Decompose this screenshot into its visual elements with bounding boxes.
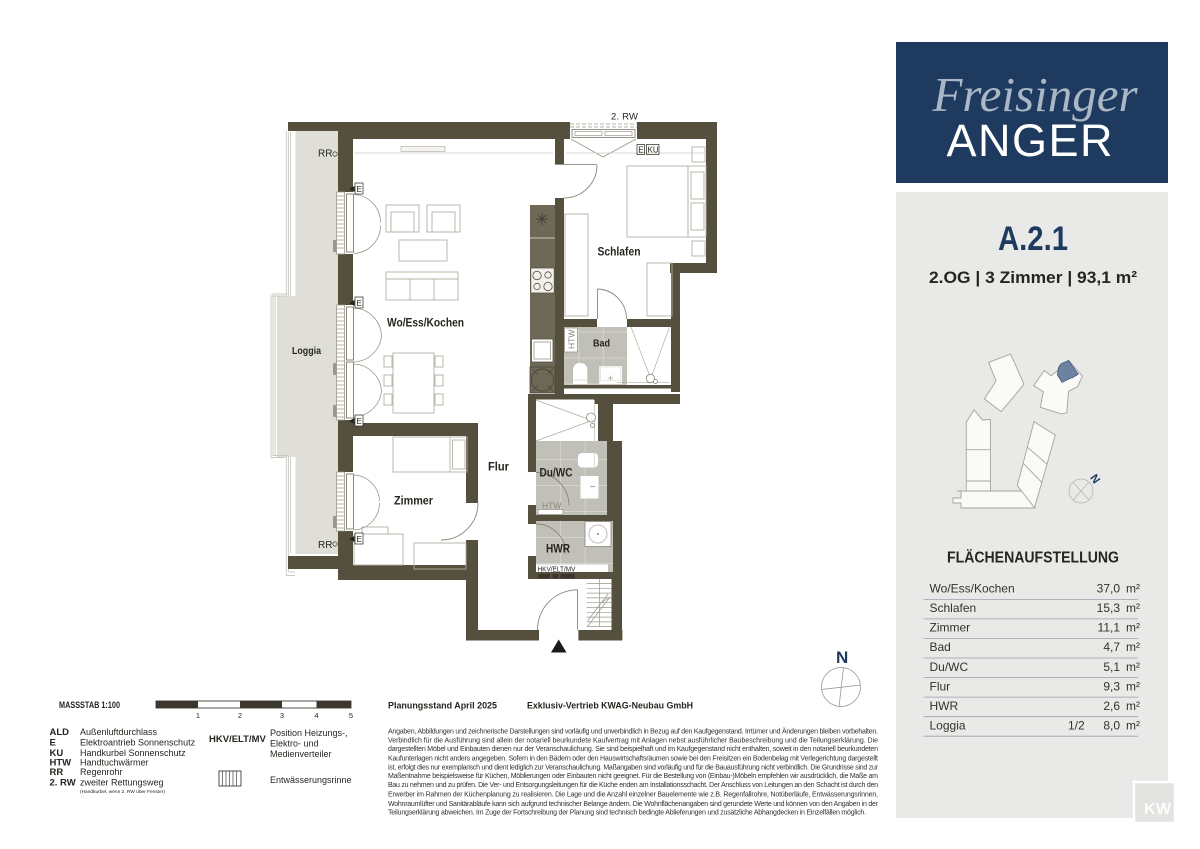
svg-text:E: E xyxy=(357,417,362,426)
svg-text:Regenrohr: Regenrohr xyxy=(80,767,123,777)
svg-text:Loggia: Loggia xyxy=(292,345,321,357)
svg-text:KW: KW xyxy=(1144,801,1172,818)
svg-text:Teilungserklärung abweichen. I: Teilungserklärung abweichen. Im Zuge der… xyxy=(388,810,866,817)
svg-text:2. RW: 2. RW xyxy=(50,777,76,788)
svg-text:Loggia: Loggia xyxy=(930,718,966,732)
svg-text:Zimmer: Zimmer xyxy=(930,621,971,635)
svg-text:4: 4 xyxy=(314,711,318,720)
svg-text:Bad: Bad xyxy=(930,640,951,654)
svg-text:m²: m² xyxy=(1126,679,1140,693)
svg-text:E: E xyxy=(357,185,362,194)
svg-text:Elektroantrieb Sonnenschutz: Elektroantrieb Sonnenschutz xyxy=(80,737,196,747)
svg-text:5: 5 xyxy=(349,711,353,720)
svg-text:Du/WC: Du/WC xyxy=(930,660,969,674)
svg-text:8,0: 8,0 xyxy=(1103,718,1120,732)
svg-text:RR: RR xyxy=(318,540,332,551)
svg-text:dargestellten Möbel und Einbau: dargestellten Möbel und Einbauten dienen… xyxy=(388,746,878,753)
svg-text:9,3: 9,3 xyxy=(1103,679,1120,693)
svg-text:KU: KU xyxy=(648,146,659,155)
svg-text:Flur: Flur xyxy=(930,679,951,693)
svg-text:MASSSTAB 1:100: MASSSTAB 1:100 xyxy=(59,700,120,711)
svg-text:Wo/Ess/Kochen: Wo/Ess/Kochen xyxy=(387,318,464,330)
svg-text:m²: m² xyxy=(1126,699,1140,713)
svg-text:E: E xyxy=(50,737,56,748)
svg-text:FLÄCHENAUFSTELLUNG: FLÄCHENAUFSTELLUNG xyxy=(947,550,1119,567)
svg-text:2,6: 2,6 xyxy=(1103,699,1120,713)
svg-text:4,7: 4,7 xyxy=(1103,640,1120,654)
svg-text:m²: m² xyxy=(1126,601,1140,615)
svg-text:Planungsstand April 2025: Planungsstand April 2025 xyxy=(388,701,498,712)
svg-text:2.OG | 3 Zimmer | 93,1 m²: 2.OG | 3 Zimmer | 93,1 m² xyxy=(929,269,1138,287)
svg-text:Maßentnahme beispielsweise für: Maßentnahme beispielsweise für Küchen, M… xyxy=(388,773,878,780)
svg-text:E: E xyxy=(357,535,362,544)
svg-text:15,3: 15,3 xyxy=(1097,601,1121,615)
svg-text:Verbindlich für die Ausführung: Verbindlich für die Ausführung sind alle… xyxy=(388,738,878,745)
svg-text:Medienverteiler: Medienverteiler xyxy=(270,749,332,759)
svg-text:Wo/Ess/Kochen: Wo/Ess/Kochen xyxy=(930,582,1015,596)
svg-text:1/2: 1/2 xyxy=(1068,718,1085,732)
svg-text:Handkurbel Sonnenschutz: Handkurbel Sonnenschutz xyxy=(80,748,186,758)
svg-text:Erwerber im Rahmen der Küchenp: Erwerber im Rahmen der Küchenplanung zu … xyxy=(388,791,878,798)
svg-text:1: 1 xyxy=(196,711,200,720)
svg-text:Elektro- und: Elektro- und xyxy=(270,739,319,749)
svg-text:Flur: Flur xyxy=(488,462,509,474)
svg-text:m²: m² xyxy=(1126,621,1140,635)
svg-text:Bau zu nehmen und zu prüfen. D: Bau zu nehmen und zu prüfen. Die Ver- un… xyxy=(388,782,878,789)
svg-text:2. RW: 2. RW xyxy=(611,112,638,123)
svg-text:Kaufunterlagen nicht anders an: Kaufunterlagen nicht anders angegeben. S… xyxy=(388,755,878,762)
svg-text:Bad: Bad xyxy=(593,338,610,350)
svg-text:37,0: 37,0 xyxy=(1097,582,1121,596)
svg-text:Position Heizungs-,: Position Heizungs-, xyxy=(270,728,348,738)
svg-text:2: 2 xyxy=(238,711,242,720)
svg-text:HKV/ELT/MV: HKV/ELT/MV xyxy=(538,567,576,574)
svg-text:(Handkurbel, wenn 2. RW über F: (Handkurbel, wenn 2. RW über Fenster) xyxy=(80,789,165,795)
svg-text:HWR: HWR xyxy=(930,699,959,713)
svg-text:ist, erfolgt dies nur exemplar: ist, erfolgt dies nur exemplarisch und d… xyxy=(388,764,879,771)
svg-text:m²: m² xyxy=(1126,718,1140,732)
svg-text:Zimmer: Zimmer xyxy=(394,496,433,508)
svg-text:m²: m² xyxy=(1126,660,1140,674)
svg-text:RR: RR xyxy=(50,767,64,778)
svg-text:E: E xyxy=(638,146,643,155)
svg-text:Exklusiv-Vertrieb KWAG-Neubau: Exklusiv-Vertrieb KWAG-Neubau GmbH xyxy=(527,701,693,712)
svg-text:Du/WC: Du/WC xyxy=(540,468,573,480)
svg-text:3: 3 xyxy=(280,711,284,720)
svg-text:Schlafen: Schlafen xyxy=(598,247,641,259)
svg-text:11,1: 11,1 xyxy=(1098,621,1121,635)
svg-text:N: N xyxy=(836,648,848,667)
svg-text:5,1: 5,1 xyxy=(1103,660,1120,674)
svg-text:ANGER: ANGER xyxy=(947,115,1118,166)
svg-text:Entwässerungsrinne: Entwässerungsrinne xyxy=(270,775,352,785)
svg-text:HTW: HTW xyxy=(567,330,577,349)
svg-text:RR: RR xyxy=(318,149,332,160)
svg-text:HTW: HTW xyxy=(542,501,561,511)
svg-text:zweiter Rettungsweg: zweiter Rettungsweg xyxy=(80,777,164,787)
svg-text:E: E xyxy=(357,299,362,308)
svg-text:Angaben, Abbildungen und zeich: Angaben, Abbildungen und zeichnerische D… xyxy=(388,728,878,736)
svg-text:m²: m² xyxy=(1126,640,1140,654)
svg-text:m²: m² xyxy=(1126,582,1140,596)
svg-text:HKV/ELT/MV: HKV/ELT/MV xyxy=(209,734,266,745)
svg-text:Freisinger: Freisinger xyxy=(931,67,1138,122)
svg-text:HWR: HWR xyxy=(546,544,571,556)
svg-text:Schlafen: Schlafen xyxy=(930,601,977,615)
svg-text:Wohnraumlüfter und Sanitärablä: Wohnraumlüfter und Sanitärabläufe kann s… xyxy=(388,801,879,808)
svg-text:A.2.1: A.2.1 xyxy=(998,220,1068,258)
svg-text:Außenluftdurchlass: Außenluftdurchlass xyxy=(80,727,158,737)
